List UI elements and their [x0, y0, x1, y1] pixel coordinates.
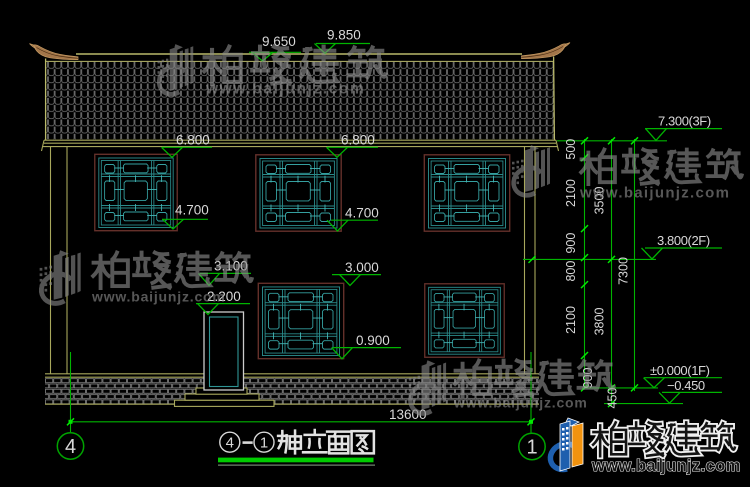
svg-text:4.700: 4.700 [345, 206, 379, 221]
svg-text:4: 4 [65, 436, 76, 458]
svg-text:www.baijunjz.com: www.baijunjz.com [91, 289, 226, 305]
svg-text:9.850: 9.850 [327, 28, 361, 43]
svg-text:2100: 2100 [564, 306, 578, 334]
svg-text:3.800(2F): 3.800(2F) [657, 233, 710, 248]
svg-text:6.800: 6.800 [176, 133, 210, 148]
svg-text:www.baijunjz.com: www.baijunjz.com [453, 395, 588, 411]
svg-text:www.baijunjz.com: www.baijunjz.com [591, 457, 741, 475]
svg-text:3800: 3800 [593, 308, 607, 336]
svg-text:900: 900 [564, 233, 578, 254]
svg-text:7300: 7300 [617, 257, 631, 285]
svg-text:www.baijunjz.com: www.baijunjz.com [579, 185, 730, 202]
svg-text:4: 4 [226, 435, 234, 452]
svg-text:6.800: 6.800 [341, 133, 375, 148]
svg-text:−0.450: −0.450 [667, 378, 705, 393]
svg-text:2100: 2100 [564, 179, 578, 207]
svg-text:500: 500 [564, 139, 578, 160]
svg-text:1: 1 [260, 435, 268, 452]
svg-text:1: 1 [526, 437, 537, 459]
svg-text:7.300(3F): 7.300(3F) [658, 114, 711, 129]
svg-text:800: 800 [564, 261, 578, 282]
svg-text:3.000: 3.000 [345, 260, 379, 275]
svg-text:±0.000(1F): ±0.000(1F) [650, 363, 710, 378]
svg-text:4.700: 4.700 [175, 203, 209, 218]
svg-text:0.900: 0.900 [356, 333, 390, 348]
svg-text:www.baijunjz.com: www.baijunjz.com [205, 81, 365, 98]
